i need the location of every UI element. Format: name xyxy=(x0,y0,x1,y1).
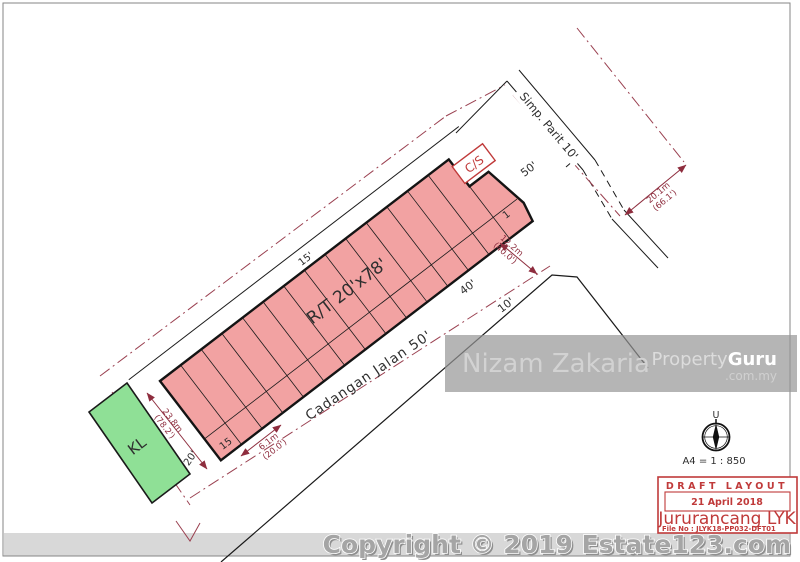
site-plan-drawing: KL R/T 20'x78' 15 1 15' 23.8m (78.2') xyxy=(0,0,800,562)
stamp-file-no: File No : JLYK18-PP032-DFT01 xyxy=(662,525,776,533)
draft-layout-page: KL R/T 20'x78' 15 1 15' 23.8m (78.2') xyxy=(0,0,800,562)
watermark-agent-name: Nizam Zakaria xyxy=(462,349,650,379)
watermark-brand-guru: Guru xyxy=(728,349,777,370)
watermark-brand-domain: .com.my xyxy=(725,369,777,383)
draft-stamp: DRAFT LAYOUT 21 April 2018 Jururancang L… xyxy=(657,477,797,533)
watermark-brand-property: Property xyxy=(652,349,729,370)
copyright-text: Copyright © 2019 Estate123.com xyxy=(323,530,791,559)
stamp-date: 21 April 2018 xyxy=(691,497,763,508)
watermark-brand: PropertyGuru xyxy=(652,349,777,370)
stamp-title: DRAFT LAYOUT xyxy=(666,481,788,492)
scale-text: A4 = 1 : 850 xyxy=(682,456,745,467)
